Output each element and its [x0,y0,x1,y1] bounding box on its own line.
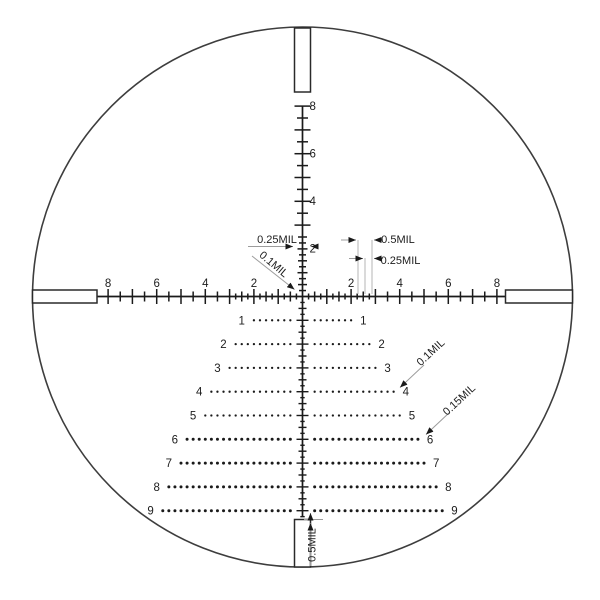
tree-dot [258,462,261,465]
tree-dot [247,367,249,369]
tree-dot [326,391,328,393]
tree-dot [374,438,377,441]
tree-dot [386,414,388,416]
tree-dot [246,438,249,441]
tree-dot [228,438,231,441]
tree-dot [344,391,346,393]
tree-dot [234,485,237,488]
tree-dot [277,509,280,512]
tree-dot [271,414,273,416]
tree-dot [235,343,237,345]
tree-dot [338,391,340,393]
tree-dot [271,485,274,488]
tree-dot [173,509,176,512]
tree-dot [192,462,195,465]
tree-dot [253,391,255,393]
tree-dot [368,509,371,512]
tree-dot [314,367,316,369]
post-left [33,290,98,303]
tree-dot [331,438,334,441]
tree-dot [392,391,394,393]
tree-dot [234,509,237,512]
tree-dot [344,438,347,441]
tree-dot [234,438,237,441]
tree-dot [356,343,358,345]
tree-dot [416,509,419,512]
tree-dot [313,509,316,512]
h-axis-label: 6 [445,278,451,290]
tree-dot [314,319,316,321]
tree-dot [265,462,268,465]
tree-dot [228,485,231,488]
tree-dot [283,391,285,393]
tree-dot [332,343,334,345]
tree-dot [368,485,371,488]
tree-dot [192,509,195,512]
tree-dot [277,414,279,416]
tree-dot [368,438,371,441]
tree-dot [356,438,359,441]
tree-row-label: 2 [378,339,384,351]
tree-dot [429,509,432,512]
tree-dot [186,438,189,441]
tree-dot [289,462,292,465]
h-axis-label: 2 [348,278,354,290]
tree-dot [265,343,267,345]
tree-dot [380,462,383,465]
tree-dot [392,462,395,465]
tree-dot [337,462,340,465]
tree-dot [423,462,426,465]
tree-dot [319,462,322,465]
tree-dot [350,367,352,369]
tree-dot [344,343,346,345]
tree-row-label: 4 [403,387,410,399]
h-axis-label: 6 [153,278,159,290]
tree-dot [423,485,426,488]
tree-dot [210,414,212,416]
tree-dot [277,391,279,393]
post-right [506,290,573,303]
h-axis-label: 8 [105,278,111,290]
tree-row-label: 9 [451,506,457,518]
tree-dot [271,462,274,465]
tree-dot [277,319,279,321]
tree-dot [398,509,401,512]
tree-dot [259,319,261,321]
tree-dot [222,391,224,393]
tree-dot [435,485,438,488]
tree-dot [368,367,370,369]
tree-dot [356,509,359,512]
tree-dot [386,438,389,441]
tree-dot [283,485,286,488]
tree-dot [259,391,261,393]
tree-dot [380,391,382,393]
tree-dot [319,509,322,512]
tree-dot [362,462,365,465]
tree-dot [192,438,195,441]
tree-dot [204,414,206,416]
tree-dot [326,367,328,369]
tree-dot [410,485,413,488]
tree-row-label: 3 [214,363,220,375]
tree-dot [362,367,364,369]
tree-dot [423,509,426,512]
tree-dot [416,485,419,488]
tree-dot [325,509,328,512]
tree-dot [265,391,267,393]
tree-dot [222,485,225,488]
tree-dot [404,462,407,465]
tree-dot [247,343,249,345]
h-axis-label: 4 [202,278,209,290]
tree-dot [410,462,413,465]
tree-dot [247,391,249,393]
tree-row-label: 6 [172,434,178,446]
tree-dot [350,462,353,465]
tree-dot [319,485,322,488]
tree-dot [259,414,261,416]
tree-row-label: 1 [360,315,366,327]
tree-dot [210,391,212,393]
tree-dot [216,509,219,512]
tree-dot [314,391,316,393]
tree-dot [350,438,353,441]
tree-dot [259,343,261,345]
tree-dot [320,343,322,345]
tree-dot [258,509,261,512]
tree-row-label: 4 [196,387,203,399]
tree-dot [161,509,164,512]
tree-dot [338,319,340,321]
tree-dot [356,485,359,488]
tree-dot [173,485,176,488]
tree-dot [410,509,413,512]
tree-dot [240,462,243,465]
tree-dot [259,367,261,369]
tree-dot [235,391,237,393]
tree-dot [362,509,365,512]
tree-dot [283,343,285,345]
tree-dot [228,367,230,369]
tree-dot [252,509,255,512]
tree-dot [332,391,334,393]
tree-dot [210,462,213,465]
tree-row-label: 1 [238,315,244,327]
tree-dot [374,462,377,465]
tree-dot [350,319,352,321]
tree-dot [398,485,401,488]
tree-dot [283,319,285,321]
tree-dot [204,462,207,465]
tree-dot [180,462,183,465]
tree-dot [332,319,334,321]
tree-dot [313,485,316,488]
tree-dot [368,462,371,465]
tree-dot [350,509,353,512]
tree-dot [186,462,189,465]
tree-dot [252,485,255,488]
h-axis-label: 2 [251,278,257,290]
tree-dot [289,509,292,512]
tree-dot [362,485,365,488]
tree-dot [277,438,280,441]
tree-dot [216,414,218,416]
tree-dot [289,343,291,345]
tree-dot [180,485,183,488]
tree-dot [338,414,340,416]
tree-dot [380,414,382,416]
tree-dot [204,485,207,488]
v-axis-label: 2 [310,244,316,256]
tree-dot [258,438,261,441]
v-axis-label: 6 [310,149,316,161]
tree-dot [271,438,274,441]
tree-dot [235,414,237,416]
tree-dot [247,414,249,416]
tree-dot [167,509,170,512]
v-axis-label: 8 [310,101,316,113]
dim-quarter-mil-spacing-label: 0.25MIL [381,255,421,267]
tree-dot [356,414,358,416]
tree-dot [198,462,201,465]
tree-dot [222,438,225,441]
tree-dot [392,509,395,512]
reticle-diagram: 2468246824681122334455667788990.25MIL0.1… [0,0,600,600]
tree-dot [204,509,207,512]
tree-dot [253,319,255,321]
tree-row-label: 8 [153,482,159,494]
tree-dot [331,509,334,512]
reticle-diagram-page: 2468246824681122334455667788990.25MIL0.1… [0,0,600,600]
tree-dot [380,485,383,488]
tree-dot [289,367,291,369]
tree-dot [216,462,219,465]
tree-dot [277,485,280,488]
tree-dot [167,485,170,488]
tree-dot [265,438,268,441]
tree-dot [241,391,243,393]
tree-dot [326,414,328,416]
tree-dot [325,485,328,488]
tree-dot [265,509,268,512]
tree-dot [186,509,189,512]
tree-dot [289,414,291,416]
tree-dot [374,367,376,369]
tree-dot [337,438,340,441]
tree-dot [350,343,352,345]
tree-dot [410,438,413,441]
tree-dot [241,414,243,416]
tree-dot [253,414,255,416]
tree-dot [314,414,316,416]
tree-dot [277,343,279,345]
tree-dot [350,391,352,393]
tree-row-label: 6 [427,434,433,446]
tree-dot [344,414,346,416]
tree-row-label: 5 [409,411,415,423]
post-top [295,28,311,92]
tree-dot [392,414,394,416]
tree-dot [283,414,285,416]
tree-dot [228,509,231,512]
tree-dot [246,509,249,512]
tree-dot [222,414,224,416]
dim-reticle-tick-width-label: 0.25MIL [257,234,297,246]
tree-dot [392,485,395,488]
tree-dot [252,462,255,465]
tree-dot [386,391,388,393]
tree-dot [216,438,219,441]
tree-dot [228,462,231,465]
tree-dot [350,414,352,416]
tree-dot [404,438,407,441]
tree-dot [289,319,291,321]
tree-dot [265,319,267,321]
tree-dot [283,367,285,369]
tree-dot [338,343,340,345]
tree-dot [380,438,383,441]
tree-dot [234,462,237,465]
tree-dot [241,367,243,369]
tree-dot [325,462,328,465]
tree-dot [404,509,407,512]
tree-dot [368,343,370,345]
v-axis-label: 4 [310,196,317,208]
tree-dot [253,367,255,369]
tree-dot [271,509,274,512]
tree-dot [228,414,230,416]
tree-dot [398,462,401,465]
tree-dot [314,343,316,345]
tree-dot [338,367,340,369]
tree-dot [326,319,328,321]
tree-dot [186,485,189,488]
tree-dot [398,438,401,441]
tree-dot [241,343,243,345]
tree-dot [204,438,207,441]
tree-dot [222,462,225,465]
tree-dot [344,319,346,321]
tree-dot [337,485,340,488]
tree-dot [332,414,334,416]
tree-dot [271,319,273,321]
tree-dot [246,462,249,465]
tree-dot [362,343,364,345]
tree-dot [416,462,419,465]
tree-dot [265,485,268,488]
tree-dot [283,462,286,465]
tree-dot [374,485,377,488]
tree-dot [368,414,370,416]
tree-dot [283,438,286,441]
tree-dot [350,485,353,488]
tree-dot [180,509,183,512]
tree-dot [404,485,407,488]
tree-row-label: 9 [147,506,153,518]
tree-dot [240,509,243,512]
h-axis-label: 8 [494,278,500,290]
tree-dot [216,391,218,393]
tree-dot [344,485,347,488]
tree-dot [429,485,432,488]
tree-dot [198,485,201,488]
tree-row-label: 2 [220,339,226,351]
tree-dot [325,438,328,441]
tree-dot [319,438,322,441]
tree-dot [344,462,347,465]
tree-dot [313,438,316,441]
tree-row-label: 7 [166,458,172,470]
tree-dot [386,509,389,512]
tree-dot [216,485,219,488]
tree-dot [271,367,273,369]
tree-dot [210,438,213,441]
tree-dot [246,485,249,488]
tree-dot [386,462,389,465]
tree-dot [320,319,322,321]
tree-dot [344,509,347,512]
tree-dot [337,509,340,512]
tree-dot [416,438,419,441]
tree-dot [313,462,316,465]
tree-dot [362,391,364,393]
tree-dot [289,438,292,441]
tree-dot [320,367,322,369]
tree-dot [320,391,322,393]
tree-dot [289,485,292,488]
tree-row-label: 8 [445,482,451,494]
tree-dot [441,509,444,512]
tree-dot [332,367,334,369]
tree-dot [271,391,273,393]
tree-dot [222,509,225,512]
tree-dot [265,414,267,416]
tree-dot [326,343,328,345]
tree-dot [253,343,255,345]
tree-dot [362,414,364,416]
h-axis-label: 4 [396,278,403,290]
tree-dot [235,367,237,369]
tree-dot [331,462,334,465]
dim-half-mil-spacing-label: 0.5MIL [381,234,415,246]
tree-dot [240,485,243,488]
tree-dot [283,509,286,512]
tree-row-label: 3 [384,363,390,375]
tree-dot [331,485,334,488]
tree-dot [374,391,376,393]
tree-dot [356,367,358,369]
tree-dot [392,438,395,441]
tree-dot [265,367,267,369]
tree-dot [210,509,213,512]
tree-dot [374,509,377,512]
tree-row-label: 7 [433,458,439,470]
tree-dot [356,391,358,393]
tree-row-label: 5 [190,411,196,423]
tree-dot [374,414,376,416]
tree-dot [228,391,230,393]
tree-dot [258,485,261,488]
tree-dot [210,485,213,488]
tree-dot [192,485,195,488]
tree-dot [289,391,291,393]
tree-dot [320,414,322,416]
tree-dot [435,509,438,512]
tree-dot [198,509,201,512]
dim-post-gap-label: 0.5MIL [307,528,319,562]
